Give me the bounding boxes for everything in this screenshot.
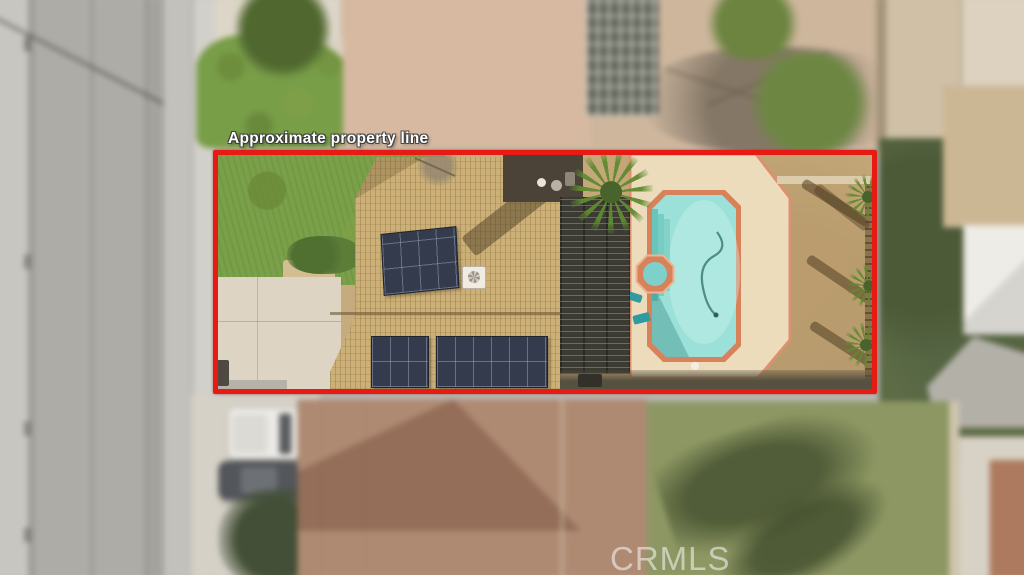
curb-joint	[24, 422, 30, 436]
far-sidewalk	[0, 0, 28, 575]
street-crack	[146, 0, 148, 575]
north-shrubs	[745, 52, 877, 153]
curb-joint	[24, 528, 30, 542]
pickup-truck	[229, 408, 300, 459]
gutter	[164, 0, 192, 575]
property-line-label: Approximate property line	[228, 130, 428, 148]
north-lattice-cover	[586, 0, 659, 116]
east-house-tan	[943, 86, 1024, 228]
property-line-box	[213, 150, 877, 394]
north-shrubs	[702, 0, 803, 59]
truck-bed	[233, 415, 267, 453]
north-fence	[876, 0, 886, 150]
truck-windshield	[279, 413, 291, 453]
curb-joint	[24, 255, 30, 269]
street	[28, 0, 164, 575]
south-east-roof	[990, 460, 1024, 575]
south-roof-ridge	[561, 399, 564, 575]
aerial-photo: Approximate property line CRMLS	[0, 0, 1024, 575]
curb-joint	[24, 37, 30, 51]
east-house-white-roof	[963, 225, 1024, 334]
north-dirt-pink	[343, 0, 591, 146]
south-fence	[949, 401, 959, 575]
street-crack	[91, 0, 93, 575]
crmls-watermark: CRMLS	[610, 540, 731, 575]
